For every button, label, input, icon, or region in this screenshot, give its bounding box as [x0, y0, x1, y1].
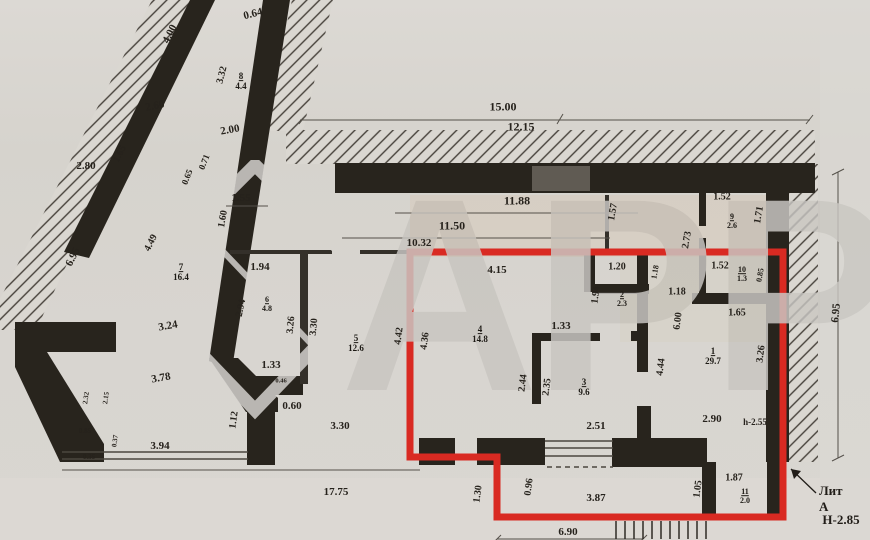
dimension-label: 3.94 — [150, 440, 169, 452]
dimension-label: 1.33 — [261, 359, 280, 371]
dimension-label: 11.88 — [504, 194, 530, 209]
dimension-label: 2.32 — [81, 391, 91, 404]
dimension-label: 2.51 — [586, 420, 605, 432]
dimension-label: 2.73 — [680, 230, 694, 249]
dimension-label: 1.71 — [752, 205, 766, 224]
dimension-label: 3.26 — [754, 345, 767, 364]
room-area: 2.6 — [727, 222, 737, 231]
dimension-label: 1.94 — [250, 261, 269, 273]
room-label: 129.7 — [705, 347, 721, 367]
dimension-label: 0.46 — [275, 378, 286, 385]
dimension-label: 0.85 — [79, 427, 91, 435]
room-area: 29.7 — [705, 357, 721, 367]
dimension-label: 1.52 — [713, 192, 731, 203]
dimension-label: 2.94 — [234, 298, 248, 317]
labels-layer: Лит А Н-2.85 0.644.003.322.602.001.652.8… — [0, 0, 870, 540]
dimension-label: 0.35 — [83, 453, 95, 461]
dimension-label: 3.30 — [330, 420, 349, 432]
dimension-label: 1.30 — [471, 485, 484, 504]
dimension-label: 3.78 — [150, 370, 171, 385]
dimension-label: 0.60 — [282, 400, 301, 412]
room-area: 2.3 — [617, 300, 627, 309]
dimension-label: 2.15 — [101, 391, 111, 404]
dimension-label: 4.00 — [160, 23, 179, 46]
dimension-label: 2.80 — [76, 160, 95, 172]
room-label: 112.0 — [740, 488, 750, 506]
dimension-label: 2.90 — [702, 413, 721, 425]
dimension-label: 0.65 — [179, 168, 194, 186]
dimension-label: 2.60 — [144, 98, 165, 114]
dimension-label: 1.18 — [668, 287, 686, 298]
room-area: 4.8 — [262, 305, 272, 314]
room-label: 64.8 — [262, 296, 272, 314]
room-label: 414.8 — [472, 325, 488, 345]
dimension-label: 1.94 — [589, 286, 602, 305]
room-label: 101.3 — [737, 266, 747, 284]
dimension-label: 2.00 — [219, 122, 240, 137]
dimension-label: 0.37 — [110, 434, 120, 447]
room-label: 92.6 — [727, 213, 737, 231]
dimension-label: 11.50 — [439, 219, 465, 234]
dimension-label: 12.15 — [508, 120, 535, 135]
room-area: 14.8 — [472, 335, 488, 345]
dimension-label: 1.87 — [725, 473, 743, 484]
room-area: 16.4 — [173, 273, 189, 283]
dimension-label: 0.96 — [522, 478, 535, 497]
room-label: 716.4 — [173, 263, 189, 283]
dimension-label: 6.00 — [671, 312, 684, 331]
dimension-label: 1.65 — [111, 144, 129, 165]
dimension-label: 3.24 — [157, 318, 178, 333]
room-area: 1.3 — [737, 275, 747, 284]
dimension-label: 3.26 — [285, 316, 297, 334]
room-area: 12.6 — [348, 344, 364, 354]
room-area: 4.4 — [235, 82, 246, 92]
dimension-label: 6.90 — [558, 526, 577, 538]
dimension-label: 0.64 — [242, 6, 264, 22]
dimension-label: 4.42 — [392, 327, 405, 346]
dimension-label: 3.32 — [215, 65, 230, 85]
dimension-label: 1.18 — [649, 264, 660, 279]
room-label: 512.6 — [348, 334, 364, 354]
dimension-label: 1.55 — [231, 192, 250, 204]
dimension-label: 1.52 — [711, 261, 729, 272]
dimension-label: 17.75 — [324, 486, 349, 498]
dimension-label: 4.44 — [654, 358, 667, 377]
dimension-label: 15.00 — [490, 100, 517, 115]
dimension-label: 1.60 — [216, 209, 230, 228]
room-area: 9.6 — [578, 388, 589, 398]
dimension-label: 10.32 — [407, 237, 432, 249]
dimension-label: h-2.55 — [743, 417, 767, 427]
dimension-label: 0.71 — [196, 153, 211, 171]
dimension-label: 2.44 — [516, 374, 529, 393]
dimension-label: 1.33 — [551, 320, 570, 332]
dimension-label: 1.57 — [606, 202, 620, 221]
building-litera: Лит А — [819, 483, 853, 515]
dimension-label: 6.95 — [63, 246, 82, 269]
room-label: 22.3 — [617, 291, 627, 309]
room-area: 2.0 — [740, 497, 750, 506]
dimension-label: 2.35 — [540, 378, 553, 397]
dimension-label: 3.30 — [308, 318, 320, 336]
dimension-label: 4.49 — [142, 233, 160, 254]
dimension-label: 1.20 — [608, 262, 626, 273]
dimension-label: 4.15 — [487, 264, 506, 276]
dimension-label: 1.05 — [691, 480, 704, 499]
room-label: 39.6 — [578, 378, 589, 398]
dimension-label: 4.36 — [418, 332, 431, 351]
dimension-label: 0.85 — [754, 267, 765, 282]
dimension-label: 1.65 — [728, 308, 746, 319]
dimension-label: 1.12 — [227, 411, 240, 430]
building-height-note: Н-2.85 — [822, 512, 859, 528]
floorplan-page: АРР АРР Лит А Н-2.85 0.644.003.322.602.0… — [0, 0, 870, 540]
room-label: 84.4 — [235, 72, 246, 92]
dimension-label: 6.95 — [829, 303, 843, 323]
dimension-label: 3.87 — [586, 492, 605, 504]
